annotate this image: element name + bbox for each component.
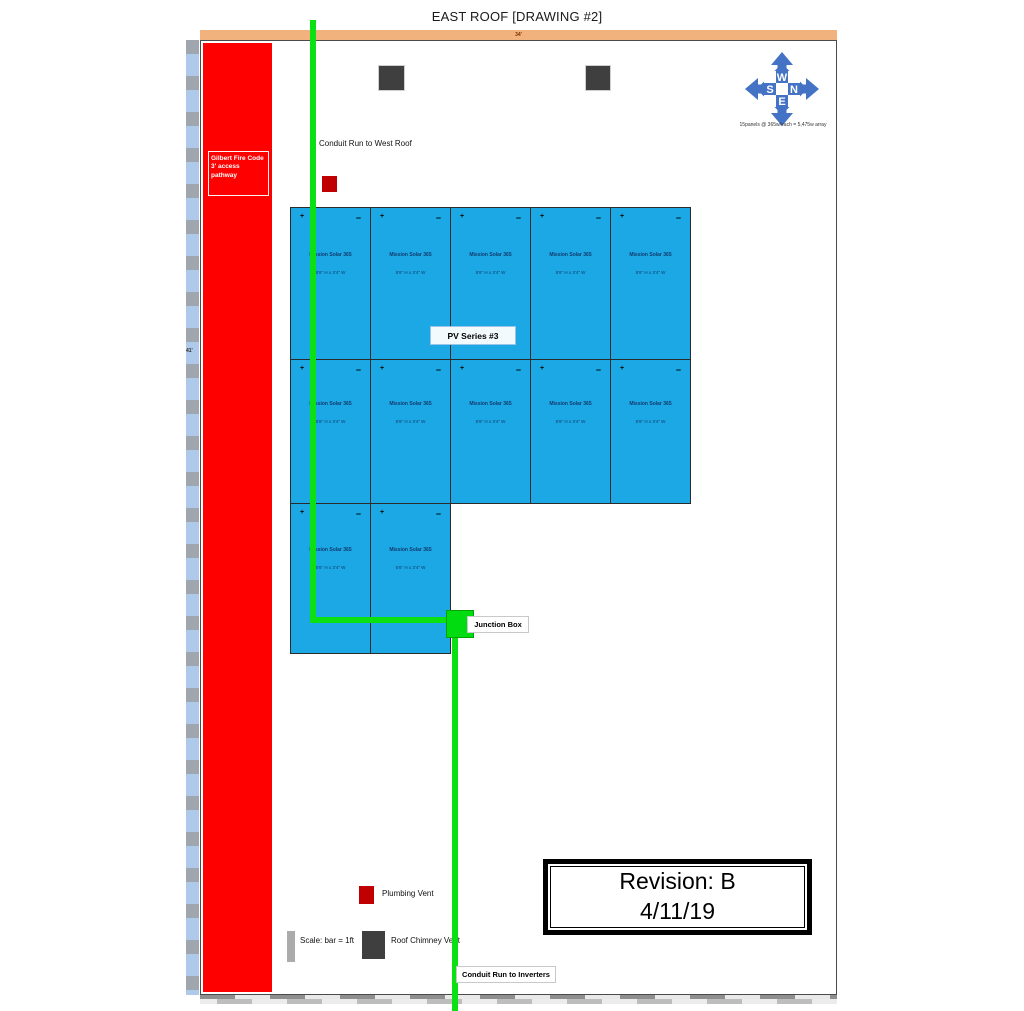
panel-positive-terminal: +	[620, 365, 624, 372]
hatch-row	[200, 999, 837, 1004]
legend-scale-label: Scale: bar = 1ft	[300, 936, 354, 945]
solar-panel: +−Mission Solar 3655'6" H x 3'4" W	[450, 359, 531, 504]
panel-model-label: Mission Solar 365	[451, 252, 530, 258]
compass-rose-icon: W S N E	[745, 52, 819, 126]
revision-box: Revision: B 4/11/19	[543, 859, 812, 935]
panel-size-label: 5'6" H x 3'4" W	[451, 270, 530, 275]
panel-negative-terminal: −	[676, 365, 681, 375]
panel-positive-terminal: +	[380, 213, 384, 220]
panel-positive-terminal: +	[460, 365, 464, 372]
panel-size-label: 5'6" H x 3'4" W	[291, 419, 370, 424]
compass-letter-bottom: E	[778, 96, 785, 108]
panel-positive-terminal: +	[380, 365, 384, 372]
conduit-line-vertical-inverters	[452, 637, 458, 1011]
panel-size-label: 5'6" H x 3'4" W	[371, 565, 450, 570]
panel-positive-terminal: +	[300, 509, 304, 516]
panel-size-label: 5'6" H x 3'4" W	[531, 419, 610, 424]
roof-chimney-vent	[378, 65, 405, 91]
panel-size-label: 5'6" H x 3'4" W	[611, 419, 690, 424]
solar-panel: +−Mission Solar 3655'6" H x 3'4" W	[290, 503, 371, 654]
panel-model-label: Mission Solar 365	[291, 401, 370, 407]
panel-negative-terminal: −	[516, 365, 521, 375]
panel-negative-terminal: −	[356, 365, 361, 375]
panel-positive-terminal: +	[620, 213, 624, 220]
plumbing-vent	[322, 176, 337, 192]
conduit-line-horizontal	[310, 617, 448, 623]
solar-panel: +−Mission Solar 3655'6" H x 3'4" W	[610, 359, 691, 504]
bottom-hatched-border	[200, 995, 837, 1004]
panel-positive-terminal: +	[300, 365, 304, 372]
panel-model-label: Mission Solar 365	[531, 401, 610, 407]
panel-negative-terminal: −	[436, 509, 441, 519]
fire-code-line: pathway	[211, 172, 266, 180]
revision-date: 4/11/19	[640, 897, 715, 927]
solar-panel: +−Mission Solar 3655'6" H x 3'4" W	[370, 503, 451, 654]
panel-negative-terminal: −	[436, 213, 441, 223]
fire-code-label: Gilbert Fire Code 3' access pathway	[208, 151, 269, 196]
top-dimension-bar: 34'	[200, 30, 837, 40]
panel-negative-terminal: −	[676, 213, 681, 223]
compass-letter-left: S	[766, 84, 773, 96]
panel-model-label: Mission Solar 365	[611, 401, 690, 407]
solar-panel: +−Mission Solar 3655'6" H x 3'4" W	[370, 359, 451, 504]
conduit-west-roof-label: Conduit Run to West Roof	[319, 139, 412, 148]
panel-negative-terminal: −	[356, 213, 361, 223]
junction-box-label: Junction Box	[467, 616, 529, 633]
legend-plumbing-vent-swatch	[359, 886, 374, 904]
conduit-line-vertical-west	[310, 20, 316, 623]
panel-negative-terminal: −	[596, 213, 601, 223]
panel-negative-terminal: −	[356, 509, 361, 519]
legend-chimney-vent-swatch	[362, 931, 385, 959]
panel-size-label: 5'6" H x 3'4" W	[451, 419, 530, 424]
revision-box-inner: Revision: B 4/11/19	[550, 866, 805, 928]
legend-scale-bar	[287, 931, 295, 962]
drawing-title: EAST ROOF [DRAWING #2]	[0, 9, 1024, 24]
panel-positive-terminal: +	[380, 509, 384, 516]
panel-size-label: 5'6" H x 3'4" W	[291, 270, 370, 275]
panel-negative-terminal: −	[436, 365, 441, 375]
panel-model-label: Mission Solar 365	[451, 401, 530, 407]
left-dimension-label: 41'	[186, 348, 193, 354]
panel-size-label: 5'6" H x 3'4" W	[371, 270, 450, 275]
legend-plumbing-vent-label: Plumbing Vent	[382, 889, 434, 898]
left-dimension-ruler	[186, 40, 199, 995]
panel-size-label: 5'6" H x 3'4" W	[611, 270, 690, 275]
solar-panel: +−Mission Solar 3655'6" H x 3'4" W	[610, 207, 691, 360]
panel-size-label: 5'6" H x 3'4" W	[291, 565, 370, 570]
solar-panel: +−Mission Solar 3655'6" H x 3'4" W	[290, 207, 371, 360]
panel-positive-terminal: +	[540, 213, 544, 220]
top-dimension-label: 34'	[515, 32, 522, 38]
solar-panel: +−Mission Solar 3655'6" H x 3'4" W	[530, 359, 611, 504]
fire-code-line: 3' access	[211, 163, 266, 171]
panel-model-label: Mission Solar 365	[611, 252, 690, 258]
panel-negative-terminal: −	[516, 213, 521, 223]
compass-letter-right: N	[790, 84, 798, 96]
panel-positive-terminal: +	[460, 213, 464, 220]
roof-chimney-vent	[585, 65, 611, 91]
array-summary-caption: 15panels @ 365w/each = 5,475w array	[733, 122, 833, 128]
solar-panel: +−Mission Solar 3655'6" H x 3'4" W	[290, 359, 371, 504]
panel-model-label: Mission Solar 365	[371, 547, 450, 553]
roof-plan-drawing: EAST ROOF [DRAWING #2] 34' 41' Gilbert F…	[0, 0, 1024, 1011]
panel-positive-terminal: +	[300, 213, 304, 220]
panel-model-label: Mission Solar 365	[531, 252, 610, 258]
compass-letter-top: W	[777, 72, 788, 84]
panel-model-label: Mission Solar 365	[291, 547, 370, 553]
conduit-inverters-label: Conduit Run to Inverters	[456, 966, 556, 983]
legend-chimney-vent-label: Roof Chimney Vent	[391, 936, 460, 945]
panel-model-label: Mission Solar 365	[371, 252, 450, 258]
panel-model-label: Mission Solar 365	[371, 401, 450, 407]
solar-panel: +−Mission Solar 3655'6" H x 3'4" W	[530, 207, 611, 360]
revision-text: Revision: B	[619, 867, 735, 897]
panel-model-label: Mission Solar 365	[291, 252, 370, 258]
pv-series-label: PV Series #3	[430, 326, 516, 345]
panel-positive-terminal: +	[540, 365, 544, 372]
fire-code-line: Gilbert Fire Code	[211, 155, 266, 163]
panel-negative-terminal: −	[596, 365, 601, 375]
panel-size-label: 5'6" H x 3'4" W	[531, 270, 610, 275]
panel-size-label: 5'6" H x 3'4" W	[371, 419, 450, 424]
